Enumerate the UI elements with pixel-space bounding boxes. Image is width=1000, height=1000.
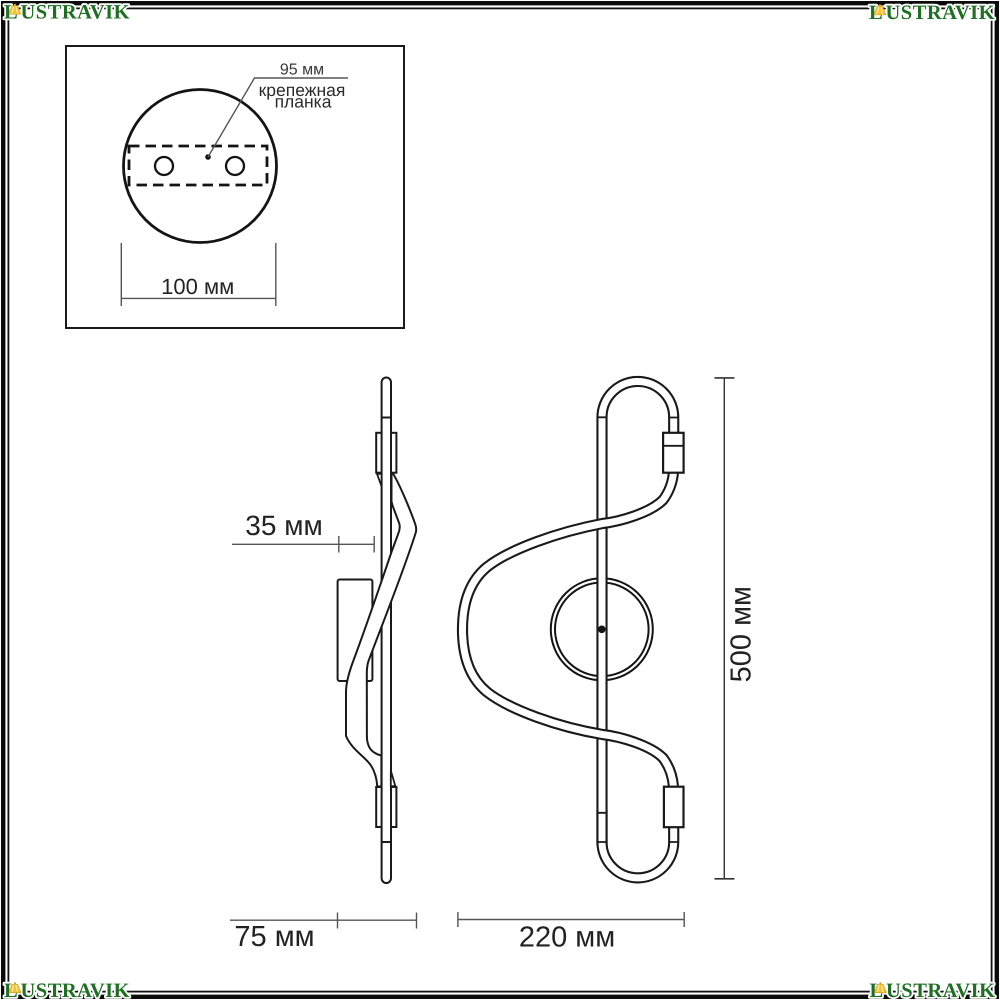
svg-text:500 мм: 500 мм [726,586,758,682]
svg-text:220 мм: 220 мм [519,921,615,953]
svg-text:95 мм: 95 мм [280,62,324,79]
svg-text:35 мм: 35 мм [245,510,322,541]
svg-text:планка: планка [275,92,332,112]
svg-text:75 мм: 75 мм [234,921,314,953]
svg-text:100 мм: 100 мм [161,274,234,299]
